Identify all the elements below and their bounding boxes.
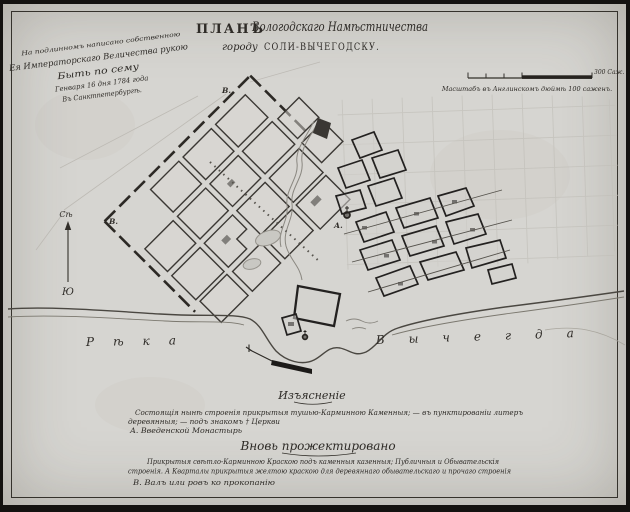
legend-item-b: В. Валъ или ровъ ко прокопанію [132, 478, 276, 487]
legend-heading2-flourish [282, 453, 356, 456]
legend-heading-flourish [294, 402, 332, 404]
legend-heading-projected: Вновь прожектировано [239, 439, 395, 453]
legend-projected-line1: Прикрытыя свѣтло-Карминною Краскою подъ … [146, 457, 499, 466]
town-block [488, 264, 516, 284]
church-dome [303, 335, 308, 340]
town-block [368, 178, 402, 206]
scale-bar: 300 Саж. Масштабъ въ Англинскомъ дюймѣ 1… [441, 69, 625, 93]
road-line [250, 62, 320, 82]
title-region: Вологодскаго Намѣстничества [251, 20, 428, 35]
marker-rampart-left: В. [108, 217, 118, 226]
north-arrow: Сѣ Ю [59, 210, 74, 298]
compass-south-label: Ю [61, 287, 74, 298]
legend-existing-line1: Состоящія нынѣ строенія прикрытыя тушью-… [135, 408, 523, 417]
legend-existing-line2: деревянныя; — подъ знакомъ † Церкви [128, 417, 280, 426]
building [288, 322, 294, 326]
north-arrow-head [65, 221, 71, 230]
town-block [446, 214, 486, 244]
scale-bar-solid [522, 75, 592, 79]
building [384, 254, 389, 258]
map-canvas: Сѣ Ю 300 Саж. Масштабъ въ Англинскомъ дю… [0, 0, 630, 512]
promontory-church-icon [303, 330, 308, 339]
scale-end-label: 300 Саж. [594, 69, 624, 76]
anchor-icon [246, 345, 272, 362]
town-block-large [294, 286, 340, 326]
town-block [356, 212, 394, 242]
jetty [246, 345, 312, 375]
map-title: ПЛАНЪ Вологодскаго Намѣстничества городу… [196, 20, 428, 53]
river-word1: Рѣка [85, 333, 195, 349]
church-dome [344, 212, 350, 218]
river-word2: Вычегда [375, 325, 598, 347]
title-line2-prefix: городу [222, 42, 258, 53]
sandbar-waves [346, 319, 378, 329]
town-block [352, 132, 382, 158]
legend-projected-line2: строенія. А Кварталы прикрытыя желтою кр… [128, 467, 511, 476]
scanned-map-photo: Сѣ Ю 300 Саж. Масштабъ въ Англинскомъ дю… [0, 0, 630, 512]
marker-monastery: А. [333, 221, 343, 230]
imperial-note: На подлинномъ написано собственною Ея Им… [6, 30, 193, 110]
river-labels: Рѣка Вычегда [85, 325, 598, 349]
legend-item-a: А. Введенской Монастырь [129, 426, 242, 435]
town-block [466, 240, 506, 268]
scale-caption: Масштабъ въ Англинскомъ дюймѣ 100 саженъ… [441, 85, 612, 93]
legend-heading-existing: Изъясненіе [277, 389, 346, 402]
compass-north-label: Сѣ [59, 210, 72, 219]
town-block [376, 266, 418, 296]
title-line2-city: СОЛИ-ВЫЧЕГОДСКУ. [264, 41, 380, 53]
shoreline-secondary [8, 316, 244, 325]
town-block [338, 160, 370, 188]
church-spire [304, 330, 307, 334]
marker-rampart-top: В. [221, 86, 231, 95]
